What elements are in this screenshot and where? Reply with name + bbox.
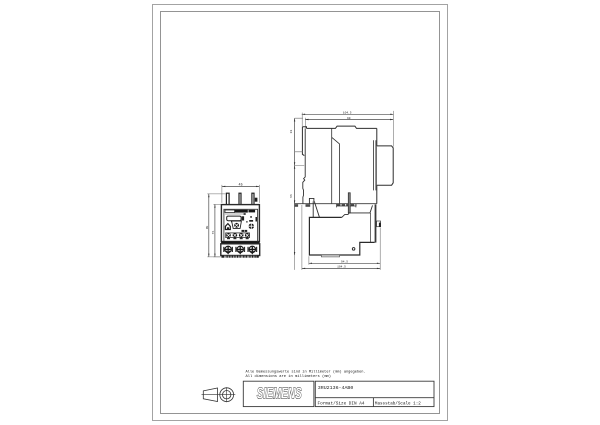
svg-text:Massstab/Scale 1:2: Massstab/Scale 1:2 <box>375 401 421 406</box>
svg-text:33: 33 <box>290 130 293 134</box>
svg-text:104.5: 104.5 <box>343 112 352 115</box>
svg-text:90: 90 <box>206 226 209 230</box>
svg-text:94.5: 94.5 <box>341 260 348 263</box>
svg-text:All dimensions are in millimet: All dimensions are in millimeters (mm) <box>246 374 332 379</box>
svg-text:55: 55 <box>290 194 293 198</box>
svg-text:3RU2136-4AB0: 3RU2136-4AB0 <box>318 385 354 391</box>
svg-text:104.5: 104.5 <box>337 266 346 269</box>
svg-text:75: 75 <box>212 231 215 235</box>
svg-text:99: 99 <box>347 117 351 120</box>
svg-text:45: 45 <box>239 184 243 188</box>
svg-text:Format/Size DIN A4: Format/Size DIN A4 <box>318 401 365 406</box>
svg-text:SIEMENS: SIEMENS <box>257 384 302 402</box>
